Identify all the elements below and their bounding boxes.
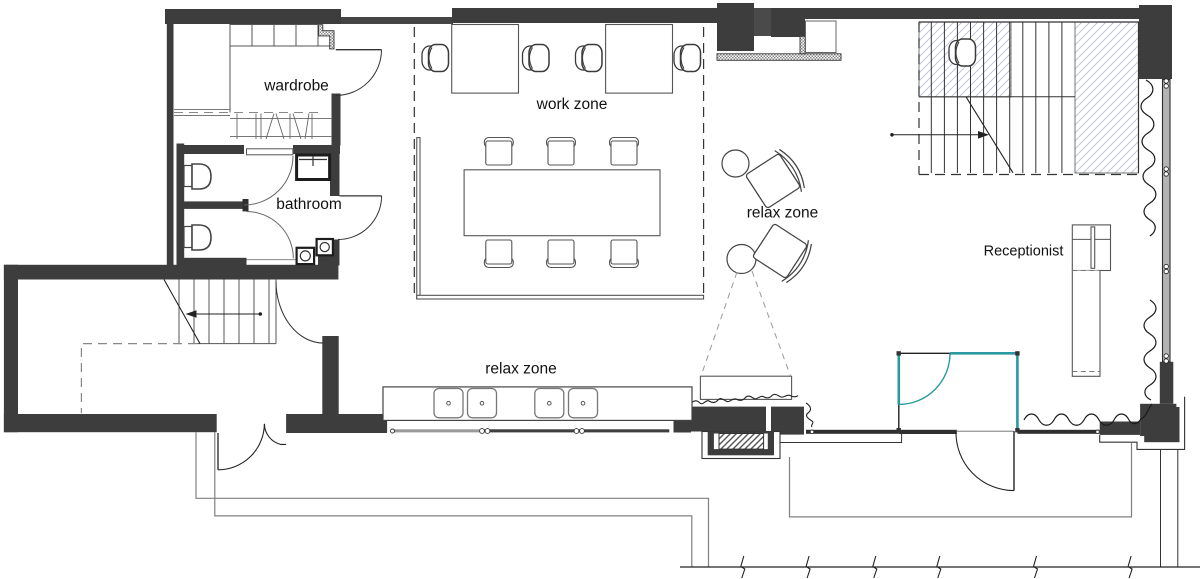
svg-text:wardrobe: wardrobe [263, 78, 329, 95]
svg-text:work zone: work zone [536, 96, 608, 113]
svg-text:Receptionist: Receptionist [984, 244, 1064, 260]
svg-text:relax zone: relax zone [485, 361, 557, 378]
svg-text:bathroom: bathroom [276, 196, 341, 213]
svg-text:relax zone: relax zone [747, 205, 819, 222]
